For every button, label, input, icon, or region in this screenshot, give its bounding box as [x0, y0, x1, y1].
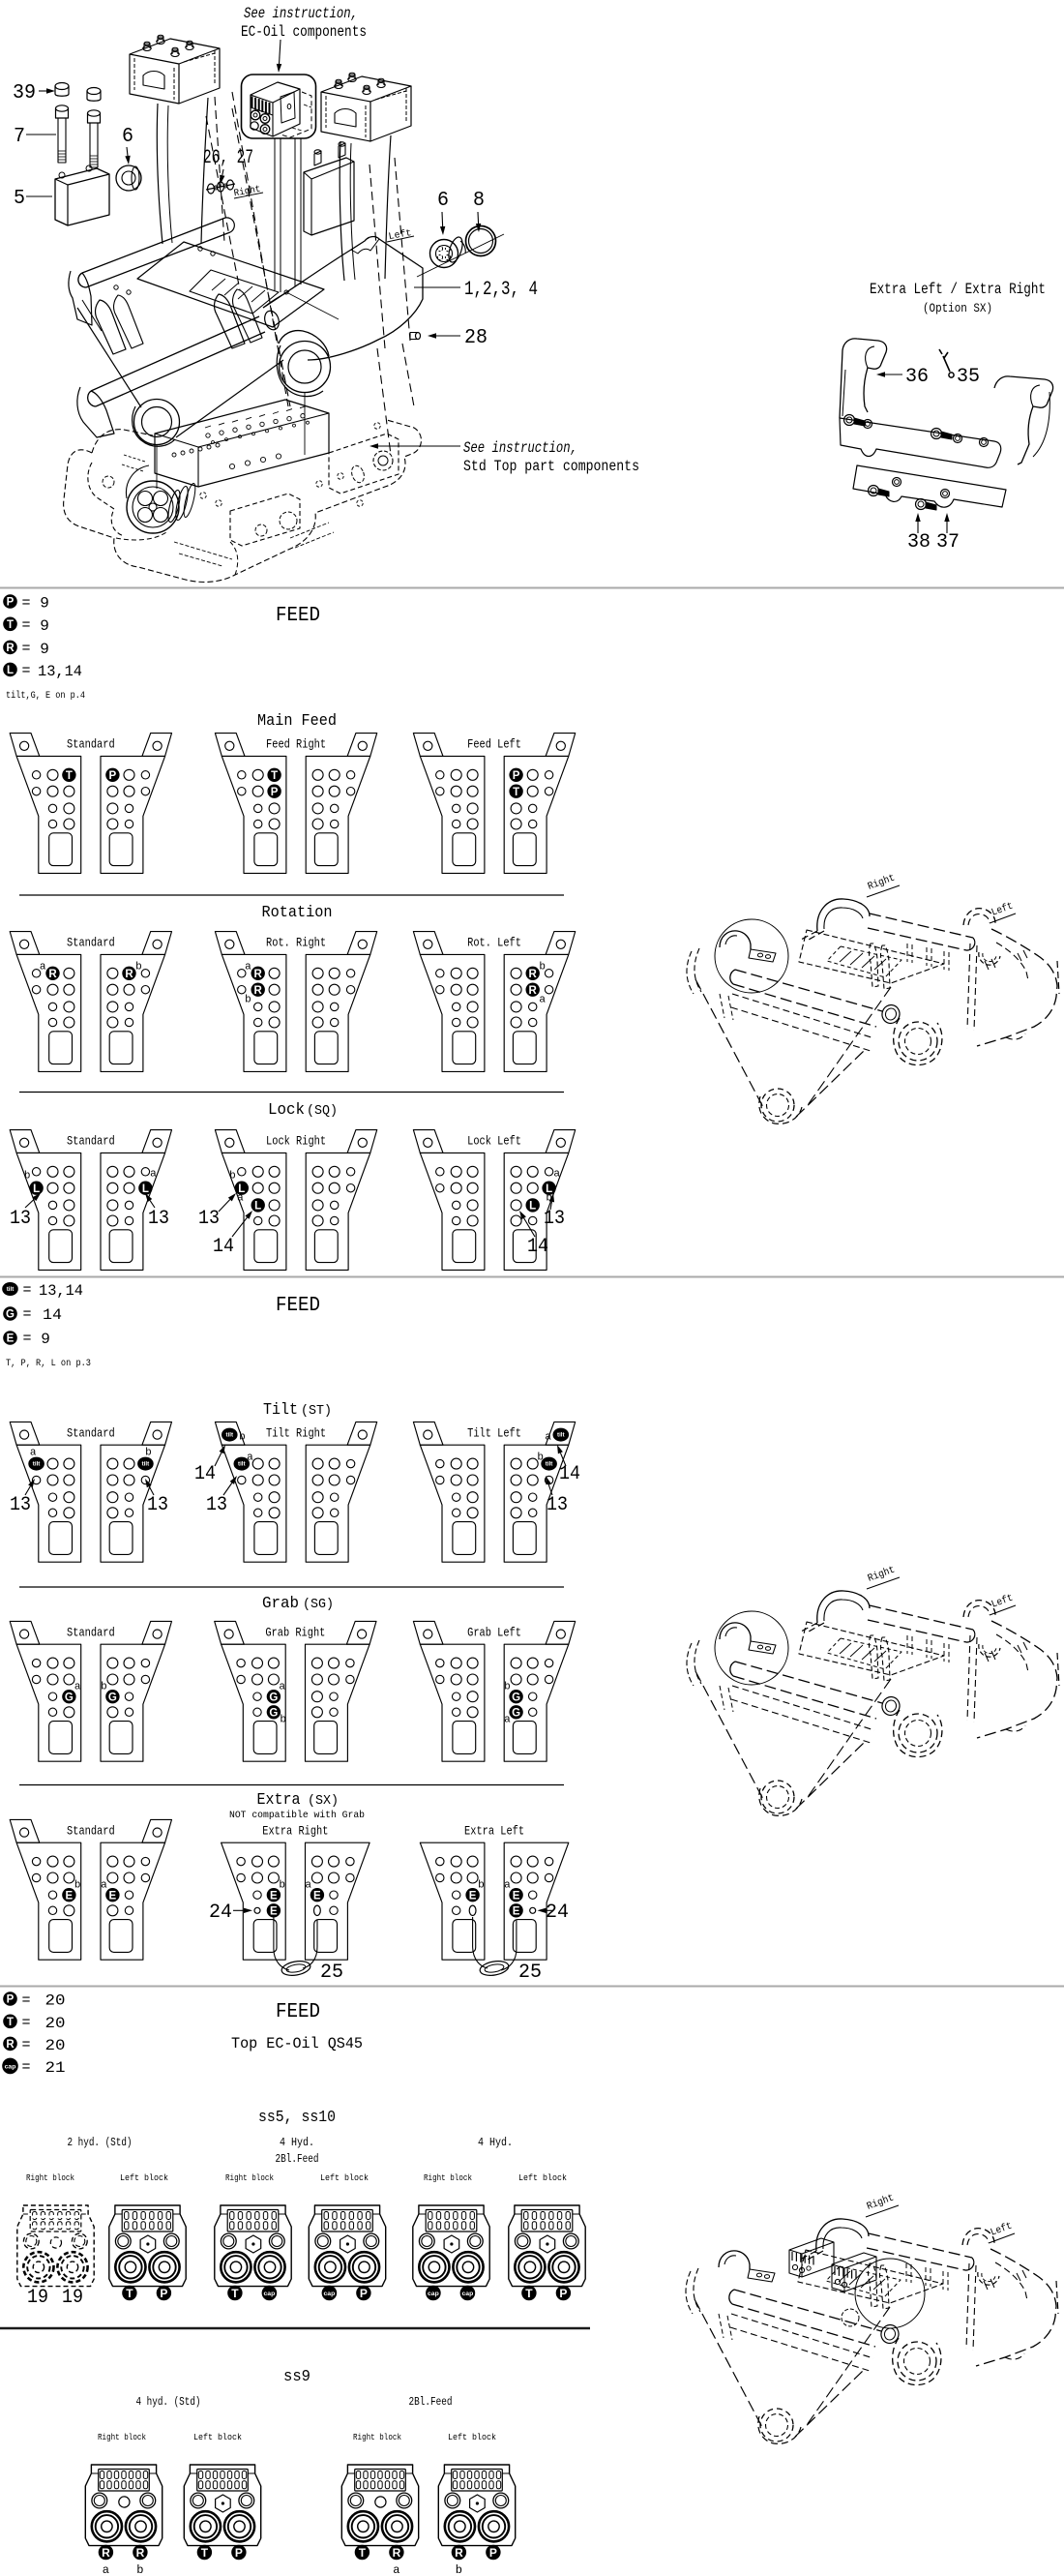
svg-text:13,14: 13,14 [39, 1282, 83, 1300]
svg-text:b: b [101, 1681, 107, 1692]
svg-text:R: R [102, 2546, 110, 2560]
svg-text:NOT compatible with Grab: NOT compatible with Grab [229, 1810, 365, 1821]
svg-text:Grab: Grab [262, 1595, 299, 1613]
svg-text:R: R [48, 969, 57, 980]
svg-text:14: 14 [559, 1463, 580, 1485]
svg-text:b: b [456, 2563, 462, 2576]
svg-text:E: E [313, 1890, 321, 1902]
svg-text:cap: cap [462, 2291, 474, 2297]
svg-text:a: a [393, 2563, 399, 2576]
svg-text:37: 37 [936, 531, 960, 554]
svg-text:a: a [237, 1193, 244, 1205]
svg-text:T: T [201, 2546, 209, 2560]
svg-text:Standard: Standard [67, 738, 115, 752]
svg-text:5: 5 [14, 188, 25, 210]
svg-text:E: E [7, 1333, 15, 1345]
svg-text:25: 25 [320, 1962, 343, 1984]
svg-text:b: b [537, 1452, 544, 1463]
svg-text:9: 9 [40, 595, 49, 613]
svg-text:=: = [21, 595, 30, 612]
svg-text:Grab Right: Grab Right [265, 1626, 325, 1639]
svg-text:(Option SX): (Option SX) [923, 302, 992, 315]
svg-text:2Bl.Feed: 2Bl.Feed [276, 2153, 319, 2166]
svg-text:T: T [513, 787, 519, 798]
svg-text:E: E [469, 1890, 477, 1902]
svg-text:6: 6 [122, 126, 133, 148]
svg-text:1,2,3, 4: 1,2,3, 4 [464, 279, 538, 301]
svg-text:E: E [513, 1890, 520, 1902]
svg-text:cap: cap [264, 2291, 276, 2297]
svg-text:a: a [545, 1431, 551, 1443]
svg-text:14: 14 [213, 1236, 234, 1258]
svg-text:ss9: ss9 [283, 2367, 310, 2385]
svg-text:L: L [33, 1183, 40, 1195]
svg-text:P: P [109, 770, 117, 782]
svg-text:13: 13 [547, 1494, 568, 1516]
svg-text:R: R [254, 969, 263, 980]
svg-text:b: b [279, 1879, 285, 1891]
svg-text:=: = [21, 641, 30, 657]
svg-text:2Bl.Feed: 2Bl.Feed [409, 2396, 453, 2409]
svg-text:T, P, R, L on p.3: T, P, R, L on p.3 [6, 1359, 91, 1369]
svg-text:G: G [65, 1692, 74, 1703]
svg-text:Tilt Right: Tilt Right [266, 1426, 326, 1440]
svg-text:R: R [529, 969, 538, 980]
svg-text:FEED: FEED [276, 2001, 320, 2023]
svg-text:a: a [30, 1447, 37, 1458]
svg-text:4 Hyd.: 4 Hyd. [478, 2137, 513, 2149]
svg-text:b: b [24, 1171, 31, 1183]
svg-text:a: a [504, 1714, 511, 1725]
svg-text:See instruction,: See instruction, [463, 439, 577, 457]
svg-text:a: a [553, 1169, 560, 1181]
svg-text:G: G [512, 1692, 520, 1703]
svg-text:20: 20 [45, 1992, 66, 2010]
svg-text:8: 8 [473, 190, 485, 212]
svg-text:13: 13 [206, 1494, 227, 1516]
svg-text:Top EC-Oil QS45: Top EC-Oil QS45 [231, 2035, 363, 2052]
svg-text:cap: cap [5, 2063, 16, 2070]
svg-text:tilt,G, E on p.4: tilt,G, E on p.4 [6, 690, 85, 702]
svg-text:G: G [6, 1309, 15, 1321]
svg-text:tilt: tilt [33, 1461, 41, 1468]
svg-text:b: b [539, 962, 546, 973]
svg-text:=: = [21, 2059, 30, 2076]
svg-text:R: R [6, 643, 15, 654]
svg-text:P: P [513, 770, 520, 782]
svg-text:P: P [235, 2546, 243, 2560]
svg-text:39: 39 [13, 82, 36, 105]
svg-text:Left block: Left block [320, 2173, 369, 2183]
svg-text:cap: cap [428, 2291, 439, 2297]
svg-text:(SQ): (SQ) [307, 1103, 338, 1119]
svg-text:b: b [74, 1879, 81, 1891]
svg-text:T: T [359, 2546, 367, 2560]
svg-text:38: 38 [907, 531, 931, 554]
svg-text:a: a [279, 1681, 285, 1692]
svg-text:14: 14 [43, 1306, 62, 1324]
svg-text:a: a [539, 995, 546, 1006]
svg-text:13: 13 [198, 1208, 220, 1230]
svg-text:cap: cap [324, 2291, 336, 2297]
svg-text:20: 20 [45, 2037, 66, 2054]
svg-text:Extra: Extra [257, 1791, 301, 1810]
svg-text:21: 21 [45, 2059, 66, 2077]
svg-text:2 hyd. (Std): 2 hyd. (Std) [68, 2137, 133, 2149]
svg-text:28: 28 [464, 327, 488, 349]
svg-text:P: P [271, 787, 279, 798]
svg-text:19: 19 [62, 2287, 83, 2309]
svg-text:20: 20 [45, 2015, 66, 2032]
svg-text:=: = [21, 1992, 30, 2009]
svg-text:14: 14 [527, 1236, 548, 1258]
svg-text:b: b [136, 2563, 143, 2576]
svg-text:(SG): (SG) [303, 1597, 334, 1612]
svg-text:P: P [7, 1994, 15, 2006]
svg-text:R: R [6, 2039, 15, 2051]
svg-text:a: a [103, 2563, 109, 2576]
svg-text:14: 14 [194, 1463, 216, 1485]
svg-text:P: P [160, 2287, 167, 2300]
svg-text:Extra Left / Extra Right: Extra Left / Extra Right [870, 281, 1046, 298]
svg-text:Left block: Left block [120, 2173, 168, 2183]
svg-text:Rotation: Rotation [262, 904, 333, 922]
svg-text:See instruction,: See instruction, [244, 5, 358, 22]
svg-text:a: a [101, 1879, 107, 1891]
svg-text:=: = [21, 663, 30, 679]
svg-text:P: P [489, 2546, 497, 2560]
svg-text:Feed Right: Feed Right [266, 738, 326, 752]
svg-text:4 Hyd.: 4 Hyd. [280, 2137, 314, 2149]
svg-text:E: E [513, 1905, 520, 1917]
svg-text:R: R [393, 2546, 401, 2560]
svg-text:b: b [280, 1714, 286, 1725]
svg-text:19: 19 [27, 2287, 48, 2309]
svg-text:7: 7 [14, 126, 25, 148]
svg-text:b: b [504, 1681, 511, 1692]
svg-text:Standard: Standard [67, 1824, 115, 1838]
svg-text:a: a [504, 1879, 511, 1891]
svg-text:T: T [271, 770, 278, 782]
svg-text:36: 36 [905, 366, 929, 388]
svg-text:P: P [360, 2287, 368, 2300]
svg-text:13,14: 13,14 [38, 663, 82, 680]
svg-text:9: 9 [41, 1331, 50, 1348]
svg-text:a: a [40, 962, 46, 973]
svg-text:a: a [245, 962, 251, 973]
svg-text:FEED: FEED [276, 605, 320, 627]
svg-text:9: 9 [40, 617, 49, 635]
svg-text:(ST): (ST) [301, 1403, 332, 1419]
svg-text:Extra Right: Extra Right [262, 1824, 328, 1838]
svg-text:Standard: Standard [67, 1626, 115, 1639]
svg-text:Right block: Right block [98, 2433, 146, 2442]
svg-text:b: b [135, 962, 142, 973]
svg-text:=: = [22, 1306, 31, 1323]
svg-text:b: b [229, 1171, 236, 1183]
svg-text:Standard: Standard [67, 1135, 115, 1149]
svg-text:T: T [126, 2287, 133, 2300]
svg-text:Tilt Left: Tilt Left [467, 1426, 521, 1440]
svg-text:=: = [22, 1331, 31, 1347]
svg-text:a: a [305, 1879, 311, 1891]
svg-text:b: b [239, 1431, 246, 1443]
svg-text:E: E [66, 1890, 74, 1902]
svg-text:T: T [231, 2287, 239, 2300]
svg-text:FEED: FEED [276, 1295, 320, 1317]
svg-text:13: 13 [148, 1208, 169, 1230]
svg-text:R: R [125, 969, 133, 980]
svg-text:Standard: Standard [67, 1426, 115, 1440]
svg-text:P: P [559, 2287, 567, 2300]
svg-text:Left block: Left block [448, 2433, 496, 2442]
svg-text:25: 25 [518, 1962, 542, 1984]
svg-text:tilt: tilt [546, 1461, 553, 1468]
svg-text:a: a [74, 1681, 81, 1692]
svg-text:Right block: Right block [225, 2173, 274, 2183]
svg-text:Tilt: Tilt [263, 1401, 298, 1420]
svg-text:E: E [270, 1890, 278, 1902]
svg-text:Std Top part components: Std Top part components [463, 458, 639, 475]
svg-text:EC-Oil components: EC-Oil components [241, 23, 367, 41]
svg-text:Rot. Right: Rot. Right [266, 937, 326, 950]
svg-text:Lock Right: Lock Right [266, 1135, 326, 1149]
svg-text:Main Feed: Main Feed [257, 712, 337, 731]
svg-text:tilt: tilt [238, 1461, 246, 1468]
svg-text:L: L [254, 1201, 261, 1213]
svg-text:E: E [109, 1890, 117, 1902]
svg-text:T: T [525, 2287, 533, 2300]
svg-text:Grab Left: Grab Left [467, 1626, 521, 1639]
svg-text:9: 9 [40, 641, 49, 658]
svg-text:Right block: Right block [424, 2173, 472, 2183]
svg-text:13: 13 [147, 1494, 168, 1516]
svg-text:T: T [66, 770, 73, 782]
svg-text:ss5, ss10: ss5, ss10 [258, 2108, 336, 2126]
svg-text:Right block: Right block [26, 2173, 74, 2183]
svg-text:Extra Left: Extra Left [464, 1824, 524, 1838]
svg-text:a: a [150, 1169, 157, 1181]
svg-text:Left block: Left block [518, 2173, 567, 2183]
svg-text:tilt: tilt [7, 1286, 15, 1293]
svg-text:L: L [7, 665, 14, 676]
svg-text:35: 35 [957, 366, 980, 388]
svg-text:Standard: Standard [67, 937, 115, 950]
svg-text:(SX): (SX) [308, 1793, 339, 1809]
svg-text:L: L [142, 1183, 149, 1195]
svg-text:24: 24 [546, 1902, 569, 1924]
svg-text:b: b [145, 1447, 152, 1458]
svg-text:Left block: Left block [193, 2433, 242, 2442]
svg-text:G: G [512, 1707, 520, 1719]
svg-text:13: 13 [544, 1208, 565, 1230]
svg-text:tilt: tilt [142, 1461, 150, 1468]
svg-text:=: = [21, 617, 30, 634]
svg-text:6: 6 [437, 190, 449, 212]
svg-text:a: a [247, 1452, 253, 1463]
svg-text:Lock Left: Lock Left [467, 1135, 521, 1149]
svg-text:G: G [269, 1692, 278, 1703]
svg-text:L: L [529, 1201, 536, 1213]
svg-text:R: R [529, 985, 538, 997]
svg-text:E: E [270, 1905, 278, 1917]
svg-text:Lock: Lock [268, 1101, 305, 1120]
svg-text:24: 24 [209, 1902, 232, 1924]
svg-text:Rot. Left: Rot. Left [467, 937, 521, 950]
svg-text:Right block: Right block [353, 2433, 401, 2442]
svg-text:P: P [7, 597, 15, 609]
svg-text:T: T [7, 619, 14, 631]
svg-text:G: G [108, 1692, 117, 1703]
svg-text:tilt: tilt [557, 1432, 565, 1439]
svg-text:R: R [136, 2546, 145, 2560]
svg-text:13: 13 [10, 1208, 31, 1230]
svg-text:b: b [245, 995, 251, 1006]
svg-text:Feed Left: Feed Left [467, 738, 521, 752]
svg-text:R: R [254, 985, 263, 997]
svg-text:4 hyd. (Std): 4 hyd. (Std) [136, 2396, 201, 2409]
svg-text:=: = [21, 2015, 30, 2031]
svg-text:13: 13 [10, 1494, 31, 1516]
svg-text:=: = [22, 1282, 31, 1299]
svg-text:G: G [269, 1707, 278, 1719]
svg-text:tilt: tilt [226, 1432, 234, 1439]
svg-text:R: R [455, 2546, 463, 2560]
svg-text:b: b [478, 1879, 485, 1891]
svg-text:T: T [7, 2017, 14, 2028]
svg-text:=: = [21, 2037, 30, 2053]
